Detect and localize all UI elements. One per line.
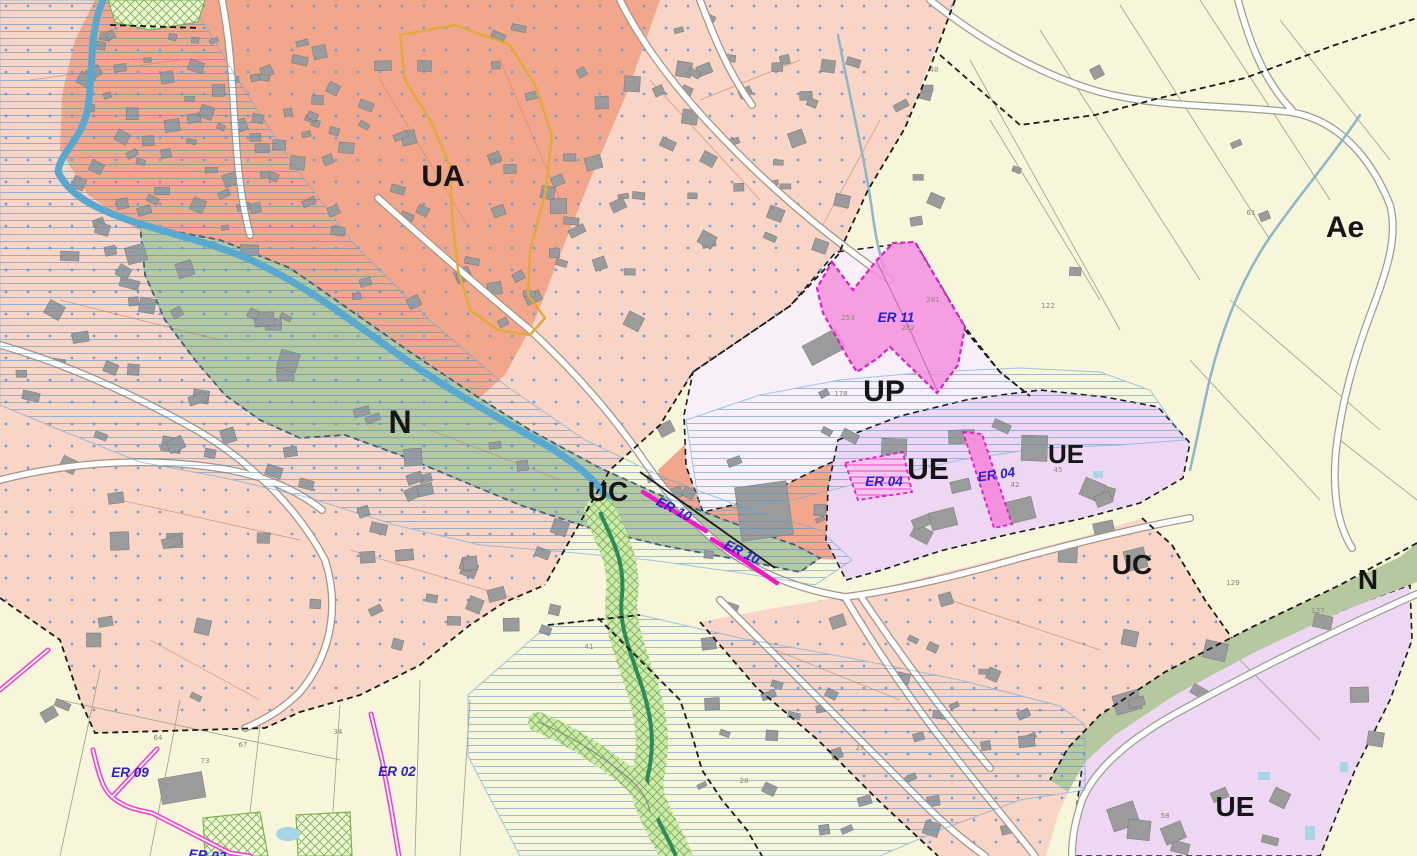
building <box>1366 731 1384 748</box>
er-label-er-04-a: ER 04 <box>865 474 903 489</box>
building <box>1350 687 1369 703</box>
building <box>503 164 516 174</box>
building <box>540 185 555 200</box>
parcel-number: 73 <box>201 757 210 765</box>
building <box>503 618 519 631</box>
zone-label-ue-1: UE <box>907 453 949 486</box>
er-label-er-02: ER 02 <box>378 764 416 779</box>
building <box>491 61 500 69</box>
parcel-number: 28 <box>740 777 749 785</box>
zone-label-ue-2: UE <box>1048 439 1084 469</box>
parcel-number: 64 <box>154 734 163 742</box>
zone-label-ue-3: UE <box>1216 791 1255 822</box>
building <box>922 85 933 91</box>
building <box>312 44 328 60</box>
parcel-number: 282 <box>901 324 914 332</box>
pond <box>276 827 300 841</box>
parcel-number: 122 <box>1041 302 1054 310</box>
building <box>548 604 561 616</box>
building <box>426 594 438 603</box>
building <box>688 193 698 199</box>
er-label-er-11: ER 11 <box>878 310 915 325</box>
er-label-er-09: ER 09 <box>111 765 149 780</box>
parcel-number: 42 <box>1011 481 1020 489</box>
parcel-number: 58 <box>1161 812 1170 820</box>
building <box>250 73 260 82</box>
building <box>284 108 293 117</box>
building <box>108 492 124 504</box>
building <box>913 174 923 180</box>
zone-label-ae: Ae <box>1326 211 1364 244</box>
building <box>624 269 635 275</box>
building <box>447 616 461 625</box>
building <box>1127 819 1151 841</box>
parcel-number: 45 <box>1054 466 1063 474</box>
building <box>563 217 579 226</box>
zone-label-uc-2: UC <box>1112 549 1152 580</box>
building <box>1069 267 1081 276</box>
building <box>86 633 101 647</box>
building <box>563 154 575 161</box>
parcel-number: 281 <box>926 296 939 304</box>
building <box>1121 629 1139 647</box>
building <box>417 60 431 72</box>
parcel-number: 41 <box>585 643 594 651</box>
parcel-number: 178 <box>834 390 847 398</box>
building <box>338 142 354 154</box>
building <box>395 549 414 562</box>
zone-label-ua: UA <box>421 160 464 193</box>
building <box>257 533 270 544</box>
building <box>312 95 324 105</box>
building <box>734 183 744 191</box>
parcel-number: 127 <box>1311 607 1324 615</box>
building <box>814 504 826 515</box>
parcel-number: 61 <box>1247 209 1256 217</box>
zoning-map[interactable]: UANUCUPUEUEUCNAeUEER 11ER 04ER 04ER 10ER… <box>0 0 1417 856</box>
parcel-number: 253 <box>841 314 854 322</box>
building <box>772 62 783 71</box>
parcel-number: 48 <box>930 66 939 74</box>
building <box>773 160 783 166</box>
building <box>632 191 645 200</box>
zone-label-n-1: N <box>388 404 411 440</box>
zoning-map-canvas[interactable]: UANUCUPUEUEUCNAeUEER 11ER 04ER 04ER 10ER… <box>0 0 1417 856</box>
parcel-number: 27 <box>856 744 865 752</box>
building <box>391 638 404 650</box>
building <box>820 59 835 73</box>
building <box>549 248 560 258</box>
building <box>194 618 212 636</box>
building <box>360 551 376 563</box>
building <box>910 216 923 226</box>
zone-label-up: UP <box>863 375 905 408</box>
parcel-number: 67 <box>239 741 248 749</box>
parcel-number: 129 <box>1226 579 1239 587</box>
building <box>374 61 391 71</box>
zone-label-uc-1: UC <box>588 476 628 507</box>
parcel-number: 34 <box>334 728 343 736</box>
parcel-number: 191 <box>488 157 501 165</box>
building <box>780 184 791 189</box>
building <box>310 599 321 609</box>
building <box>624 76 641 92</box>
building <box>979 669 989 674</box>
building <box>462 556 477 571</box>
building <box>595 96 609 109</box>
building <box>550 198 567 213</box>
building <box>110 532 129 551</box>
zone-label-n-2: N <box>1358 564 1378 595</box>
